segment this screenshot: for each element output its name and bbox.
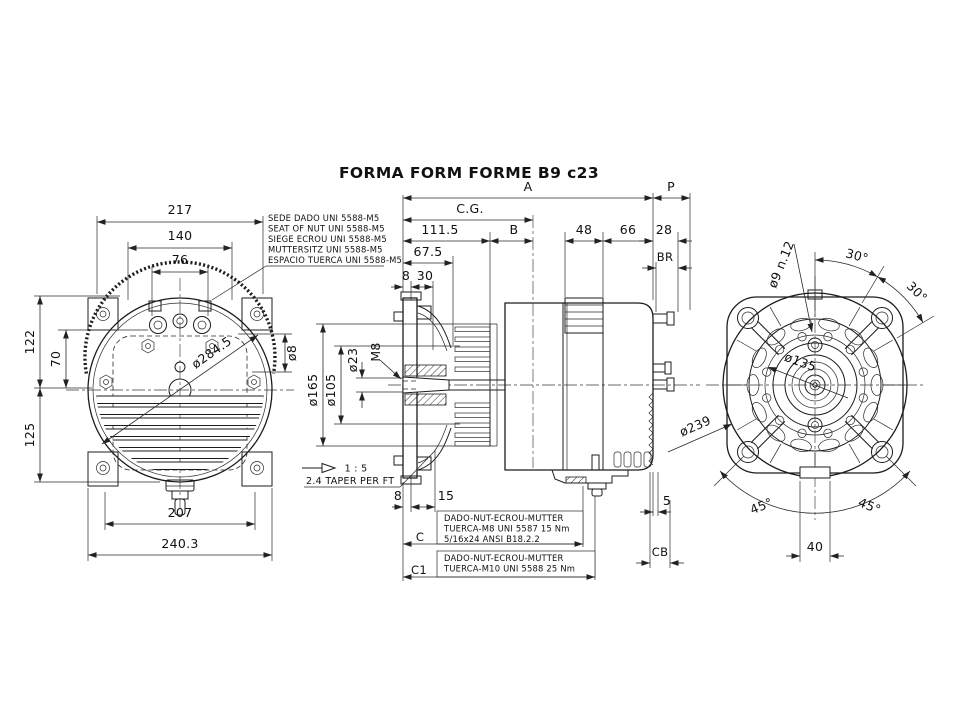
label-C1: C1 [411,563,427,577]
dim-dia-165: ø165 [305,374,320,407]
dim-30-a: 30° [844,245,870,265]
dim-A: A [524,179,533,194]
dim-B: B [510,222,519,237]
dim-30: 30 [417,268,434,283]
dim-67-5: 67.5 [413,244,442,259]
dim-28: 28 [656,222,673,237]
dim-8-bottom: 8 [394,488,402,503]
dim-45-a: 45° [748,495,775,518]
nut-note: SEDE DADO UNI 5588-M5 SEAT OF NUT UNI 55… [212,213,402,300]
note-C-line-2: TUERCA-M8 UNI 5587 15 Nm [443,524,570,534]
dim-70: 70 [48,351,63,368]
dim-15: 15 [438,488,455,503]
dim-125: 125 [22,423,37,448]
dim-45-b: 45° [856,495,883,518]
dim-dia-23: ø23 [345,348,360,372]
drawing-title: FORMA FORM FORME B9 c23 [339,164,599,182]
stator-housing [505,298,674,470]
bottom-tab [800,467,830,478]
label-C: C [416,530,424,544]
cooling-louvres [96,396,264,470]
dim-dia-105: ø105 [323,374,338,407]
dim-CB: CB [652,545,669,559]
nut-note-line-5: ESPACIO TUERCA UNI 5588-M5 [268,255,402,265]
note-C1-line-2: TUERCA-M10 UNI 5588 25 Nm [443,564,575,574]
note-C1-line-1: DADO-NUT-ECROU-MUTTER [444,553,564,563]
engineering-drawing-canvas: FORMA FORM FORME B9 c23 [0,0,960,720]
taper-ratio: 1 : 5 [345,464,368,475]
note-C-line-1: DADO-NUT-ECROU-MUTTER [444,513,564,523]
front-view: 217 140 76 122 70 125 207 240.3 ø284.5 [22,202,402,561]
taper-text: 2.4 TAPER PER FT [306,476,394,487]
dim-217: 217 [168,202,193,217]
taper-note: 1 : 5 2.4 TAPER PER FT [302,458,428,487]
dim-207: 207 [168,505,193,520]
dim-CG: C.G. [456,201,484,216]
nut-note-line-4: MUTTERSITZ UNI 5588-M5 [268,245,383,255]
dim-140: 140 [168,228,193,243]
nut-torque-note-C: C DADO-NUT-ECROU-MUTTER TUERCA-M8 UNI 55… [403,486,583,547]
nut-note-line-3: SIEGE ECROU UNI 5588-M5 [268,234,387,244]
end-view: ø9 n.12 30° 30° ø135 ø239 45° 45° 40 [668,239,934,562]
dim-M8: M8 [368,342,383,361]
dim-48: 48 [576,222,593,237]
drawing-page: FORMA FORM FORME B9 c23 [0,0,960,720]
dim-240-3: 240.3 [161,536,198,551]
dim-holes: ø9 n.12 [765,239,797,291]
dim-111-5: 111.5 [421,222,458,237]
dim-40: 40 [807,539,824,554]
dim-dia-239: ø239 [677,412,713,439]
dim-BR: BR [657,250,673,264]
dim-66: 66 [620,222,637,237]
dim-76: 76 [172,252,189,267]
dim-122: 122 [22,330,37,355]
nut-note-line-1: SEDE DADO UNI 5588-M5 [268,213,379,223]
dim-P: P [667,179,675,194]
dim-8-top: 8 [402,268,410,283]
nut-note-line-2: SEAT OF NUT UNI 5588-M5 [268,224,385,234]
note-C-line-3: 5/16x24 ANSI B18.2.2 [444,534,540,544]
dim-dia-284-5: ø284.5 [189,333,235,371]
dim-dia-8: ø8 [284,345,299,361]
dim-dia-135: ø135 [783,349,819,374]
